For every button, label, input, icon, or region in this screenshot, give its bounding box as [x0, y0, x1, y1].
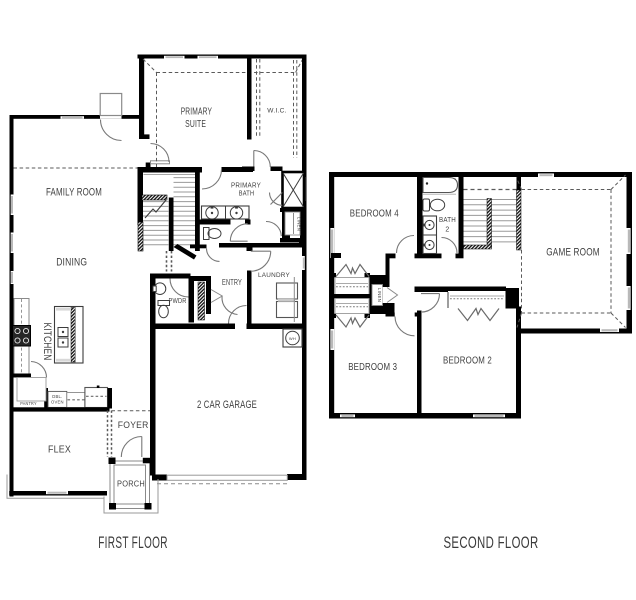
svg-text:BEDROOM 3: BEDROOM 3 — [348, 361, 397, 373]
svg-text:LINEN: LINEN — [297, 217, 302, 231]
svg-text:FIRST FLOOR: FIRST FLOOR — [98, 533, 168, 552]
svg-text:FOYER: FOYER — [118, 420, 149, 430]
svg-text:PRIMARY: PRIMARY — [181, 107, 212, 118]
svg-text:2 CAR GARAGE: 2 CAR GARAGE — [197, 399, 257, 411]
svg-text:PRIMARY: PRIMARY — [231, 183, 261, 190]
svg-text:WH: WH — [289, 336, 296, 341]
svg-text:BATH: BATH — [239, 191, 255, 198]
svg-text:SECOND FLOOR: SECOND FLOOR — [444, 533, 539, 552]
svg-text:SUITE: SUITE — [185, 119, 206, 130]
svg-text:GAME ROOM: GAME ROOM — [546, 247, 600, 259]
svg-text:BATH: BATH — [439, 217, 456, 224]
svg-text:OVEN: OVEN — [51, 400, 64, 405]
svg-text:LINEN: LINEN — [377, 288, 382, 302]
svg-text:FAMILY ROOM: FAMILY ROOM — [46, 187, 102, 199]
svg-text:PWDR: PWDR — [169, 298, 187, 305]
svg-text:ENTRY: ENTRY — [222, 278, 242, 287]
svg-text:BEDROOM 4: BEDROOM 4 — [350, 207, 399, 219]
svg-text:KITCHEN: KITCHEN — [41, 323, 53, 361]
svg-text:2: 2 — [445, 227, 449, 234]
svg-text:BEDROOM 2: BEDROOM 2 — [443, 355, 492, 367]
svg-text:LAUNDRY: LAUNDRY — [258, 272, 290, 279]
svg-text:PORCH: PORCH — [117, 480, 145, 489]
svg-text:FLEX: FLEX — [48, 443, 71, 455]
svg-text:W.I.C.: W.I.C. — [267, 107, 286, 114]
svg-text:PANTRY: PANTRY — [20, 401, 37, 406]
svg-text:DINING: DINING — [56, 257, 87, 269]
svg-text:DBL.: DBL. — [52, 394, 62, 399]
